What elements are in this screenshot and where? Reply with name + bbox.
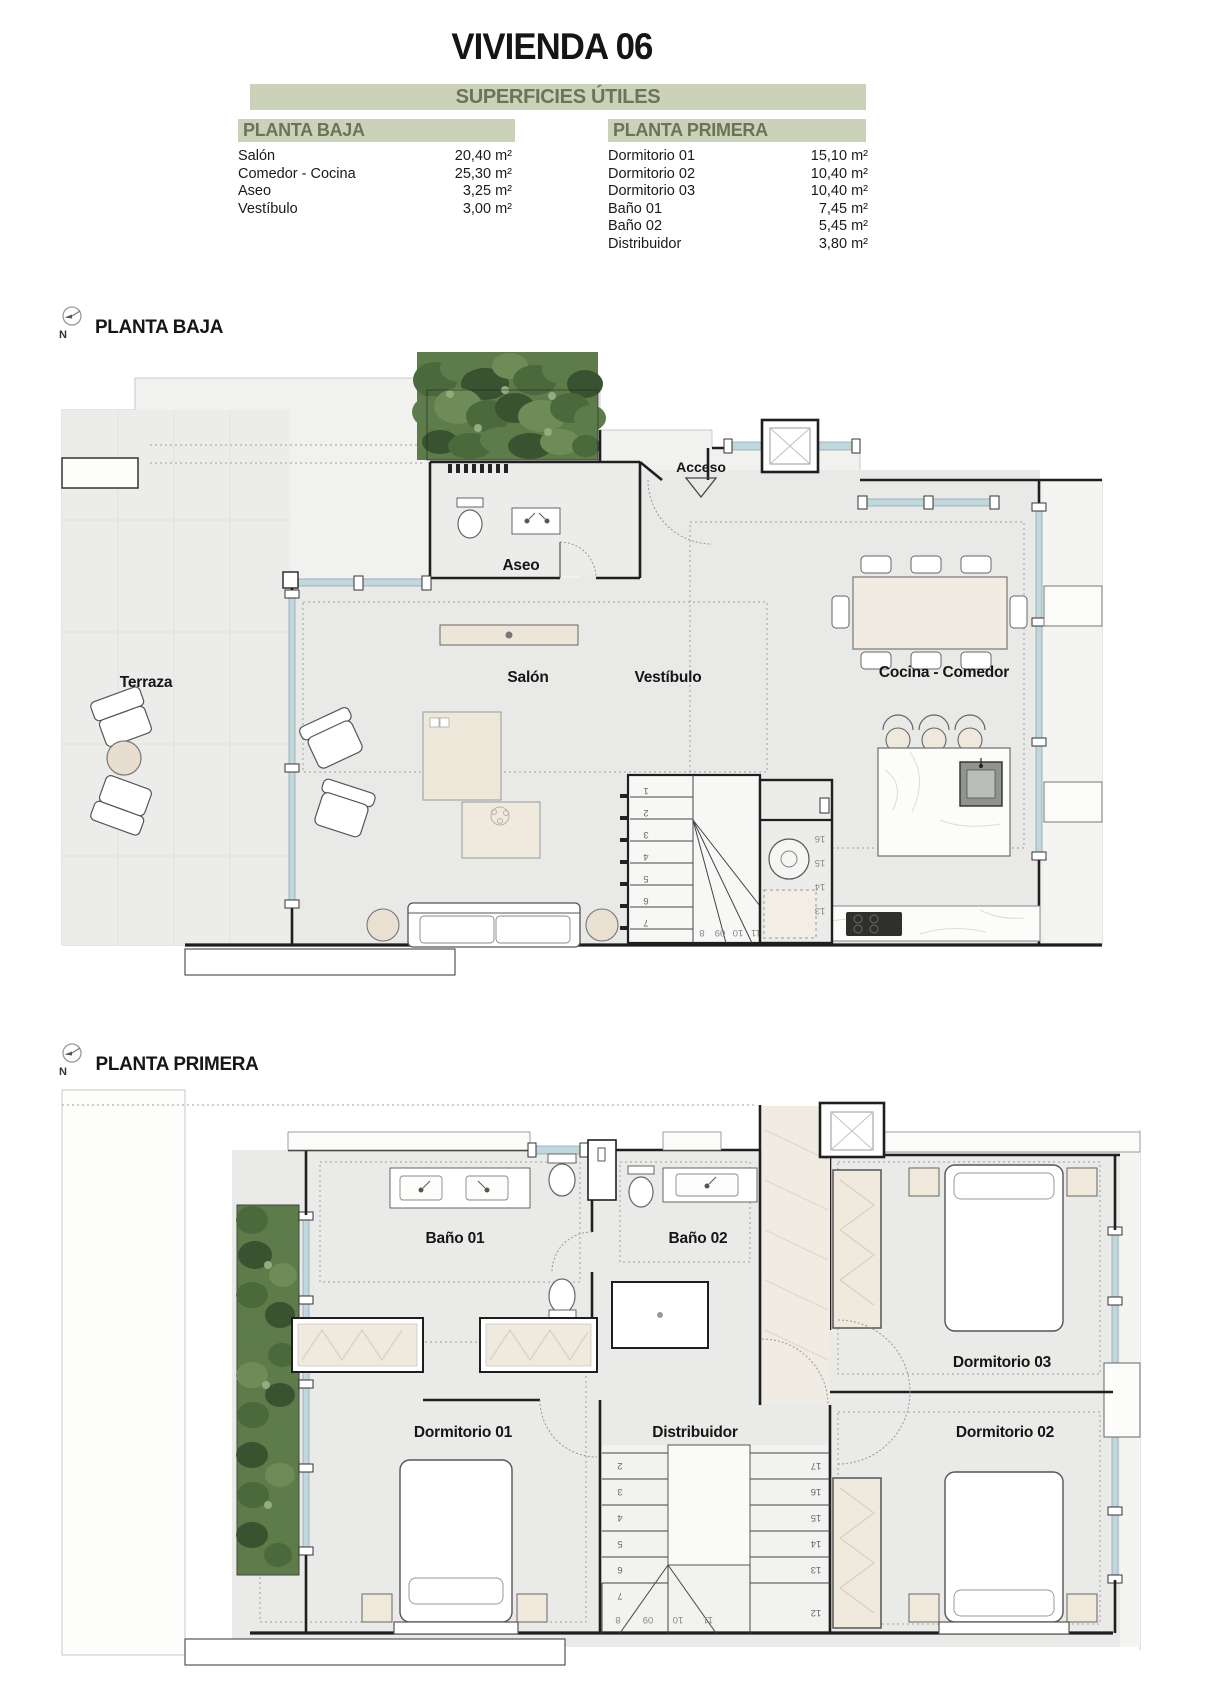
cooktop [846,912,902,936]
table-row: Baño 017,45 m² [608,201,868,219]
area-value: 10,40 m² [811,183,868,201]
room-label-cocina: Cocina - Comedor [879,664,1009,681]
nightstand [909,1168,939,1196]
ground-floor-plan: 1 2 3 4 5 6 7 8 09 10 11 16 15 14 13 [0,350,1205,1020]
north-letter: N [59,329,67,339]
area-value: 7,45 m² [819,201,868,219]
room-label: Baño 01 [608,201,662,219]
page-title: VIVIENDA 06 [0,26,1103,68]
stair-landing-mid [668,1445,750,1565]
area-value: 15,10 m² [811,148,868,166]
right-exterior-strip [1044,480,1102,945]
nightstand [517,1594,547,1622]
sink-vanity [512,508,560,534]
sideboard [440,625,578,645]
stair-number: 15 [811,1512,822,1523]
stair-number: 14 [815,881,826,892]
stair-number: 5 [643,873,648,884]
headboard [394,1622,518,1634]
window-pillar [1104,1363,1140,1437]
duct [820,798,829,813]
surfaces-header-bar: SUPERFICIES ÚTILES [250,84,866,110]
vertical-garden [236,1205,299,1575]
toilet-icon [549,1164,575,1196]
room-label-distribuidor: Distribuidor [652,1424,738,1441]
room-label-dorm3: Dormitorio 03 [953,1354,1052,1371]
laundry-closet: 16 15 14 13 [760,780,832,943]
exterior-step [185,949,455,975]
staircase: 2 3 4 5 6 7 17 16 15 14 13 12 8 09 10 11 [602,1445,830,1633]
table-row: Dormitorio 0115,10 m² [608,148,868,166]
stair-number: 10 [733,927,744,938]
room-label-dorm1: Dormitorio 01 [414,1424,513,1441]
toilet-icon [629,1177,653,1207]
stair-number: 5 [617,1538,622,1549]
room-label-bano2: Baño 02 [669,1230,728,1247]
stair-number: 8 [699,927,704,938]
stair-number: 8 [615,1614,620,1625]
planter-bench [62,458,138,488]
room-label-terraza: Terraza [120,674,173,691]
stair-number: 16 [815,833,826,844]
room-label: Dormitorio 02 [608,166,695,184]
stair-number: 3 [617,1486,622,1497]
upper-flight-dashed [764,890,816,938]
nightstand [909,1594,939,1622]
stair-number: 4 [617,1512,622,1523]
area-value: 20,40 m² [455,148,536,166]
room-label: Dormitorio 01 [608,148,695,166]
section-label-planta-baja: N PLANTA BAJA [58,305,225,339]
room-label-acceso: Acceso [676,459,726,475]
table-planta-primera-rows: Dormitorio 0115,10 m² Dormitorio 0210,40… [608,148,868,254]
nightstand [1067,1594,1097,1622]
dining-table [853,577,1007,649]
area-value: 3,25 m² [463,183,536,201]
stair-number: 13 [811,1564,822,1575]
elevator [762,420,818,472]
table-planta-primera-title: PLANTA PRIMERA [608,119,866,142]
table-row: Salón20,40 m² [238,148,536,166]
stair-number: 3 [643,829,648,840]
table-row: Comedor - Cocina25,30 m² [238,166,536,184]
surfaces-header-label: SUPERFICIES ÚTILES [456,86,661,108]
stair-number: 6 [643,895,648,906]
washing-machine-icon [769,839,809,879]
room-label-aseo: Aseo [502,557,539,574]
room-label: Dormitorio 03 [608,183,695,201]
stair-number: 16 [811,1486,822,1497]
area-value: 3,00 m² [463,201,536,219]
room-label-salon: Salón [507,669,548,686]
room-label: Salón [238,148,275,166]
room-label: Vestíbulo [238,201,298,219]
stair-number: 17 [811,1460,822,1471]
stair-number: 15 [815,857,826,868]
table-row: Dormitorio 0310,40 m² [608,183,868,201]
plan-title: PLANTA BAJA [95,316,223,339]
stair-number: 6 [617,1564,622,1575]
stair-number: 10 [673,1614,684,1625]
area-value: 25,30 m² [455,166,536,184]
first-floor-plan: 2 3 4 5 6 7 17 16 15 14 13 12 8 09 10 11… [0,1020,1205,1704]
round-table [107,741,141,775]
room-label: Baño 02 [608,218,662,236]
area-value: 5,45 m² [819,218,868,236]
table-row: Distribuidor3,80 m² [608,236,868,254]
terrace-area [62,410,290,945]
room-label-bano1: Baño 01 [426,1230,485,1247]
toilet-icon [549,1279,575,1313]
stair-number: 7 [617,1590,622,1601]
pillow [954,1590,1054,1616]
area-value: 3,80 m² [819,236,868,254]
table-row: Baño 025,45 m² [608,218,868,236]
stair-number: 1 [643,785,648,796]
side-table [367,909,399,941]
staircase: 1 2 3 4 5 6 7 8 09 10 11 [620,775,761,943]
coffee-table [462,802,540,858]
stair-number: 09 [715,927,726,938]
room-label: Distribuidor [608,236,681,254]
stair-number: 12 [811,1607,822,1618]
stair-number: 13 [815,905,826,916]
terrace-below-outline [62,1090,185,1655]
north-compass-icon: N [58,305,84,339]
room-label-vestibulo: Vestíbulo [634,669,701,686]
floor-plan-sheet: VIVIENDA 06 SUPERFICIES ÚTILES PLANTA BA… [0,0,1205,1704]
headboard [939,1622,1069,1634]
table-planta-baja-rows: Salón20,40 m² Comedor - Cocina25,30 m² A… [238,148,536,218]
toilet-icon [458,510,482,538]
stair-number: 11 [703,1614,713,1625]
pillow [954,1173,1054,1199]
area-value: 10,40 m² [811,166,868,184]
table-planta-baja: PLANTA BAJA Salón20,40 m² Comedor - Coci… [238,119,536,218]
top-wall-band [288,1132,530,1150]
stair-number: 7 [643,917,648,928]
room-label: Aseo [238,183,271,201]
top-wall-band [884,1132,1140,1152]
room-label-dorm2: Dormitorio 02 [956,1424,1054,1441]
stair-number: 2 [643,807,648,818]
stair-number: 2 [617,1460,622,1471]
stair-number: 4 [643,851,648,862]
stair-number: 14 [811,1538,822,1549]
room-label: Comedor - Cocina [238,166,356,184]
top-wall-band [663,1132,721,1150]
toilet-tank [457,498,483,507]
table-row: Dormitorio 0210,40 m² [608,166,868,184]
side-table [586,909,618,941]
vertical-garden [412,352,606,460]
stair-number: 09 [643,1614,654,1625]
exterior-step [185,1639,565,1665]
table-planta-baja-title: PLANTA BAJA [238,119,515,142]
table-row: Vestíbulo3,00 m² [238,201,536,219]
nightstand [362,1594,392,1622]
table-row: Aseo3,25 m² [238,183,536,201]
nightstand [1067,1168,1097,1196]
table-planta-primera: PLANTA PRIMERA Dormitorio 0115,10 m² Dor… [608,119,868,254]
pillow [409,1578,503,1604]
elevator [820,1103,884,1157]
